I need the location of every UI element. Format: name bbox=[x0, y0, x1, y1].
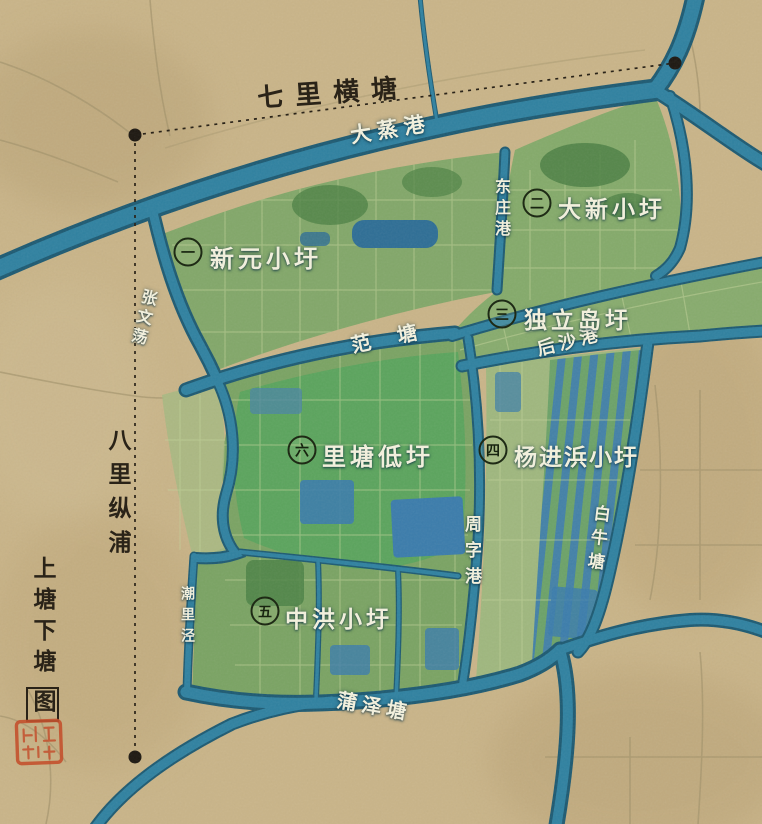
river-label-zhouzigang: 周字港 bbox=[459, 515, 484, 593]
polder-label-six: 里塘低圩 bbox=[322, 437, 434, 472]
map-title-boxed-char: 图 bbox=[26, 687, 59, 722]
historical-polder-map: 七里横塘 八里纵浦 大蒸港 东庄港 张文荡 范 塘 后沙港 周字港 白牛塘 潮里… bbox=[0, 0, 762, 824]
polder-number-six: 六 bbox=[288, 436, 317, 465]
polder-number-five: 五 bbox=[251, 597, 280, 626]
river-label-chaolijing: 潮里泾 bbox=[177, 586, 197, 649]
polder-number-two: 二 bbox=[523, 189, 552, 218]
polder-label-four: 杨进浜小圩 bbox=[514, 438, 639, 472]
polder-label-two: 大新小圩 bbox=[558, 190, 666, 224]
polder-label-three: 独立岛圩 bbox=[524, 301, 632, 335]
polder-number-three: 三 bbox=[488, 300, 517, 329]
polder-label-one: 新元小圩 bbox=[210, 239, 322, 274]
polder-label-five: 中洪小圩 bbox=[285, 600, 393, 634]
boundary-label-west: 八里纵浦 bbox=[100, 428, 134, 564]
river-label-dongzhuanggang: 东庄港 bbox=[489, 178, 513, 241]
map-title: 上塘下塘图 bbox=[25, 556, 59, 722]
polder-number-four: 四 bbox=[479, 436, 508, 465]
map-title-text: 上塘下塘 bbox=[29, 556, 56, 680]
seal-stamp-icon bbox=[14, 718, 64, 766]
polder-number-one: 一 bbox=[174, 238, 203, 267]
